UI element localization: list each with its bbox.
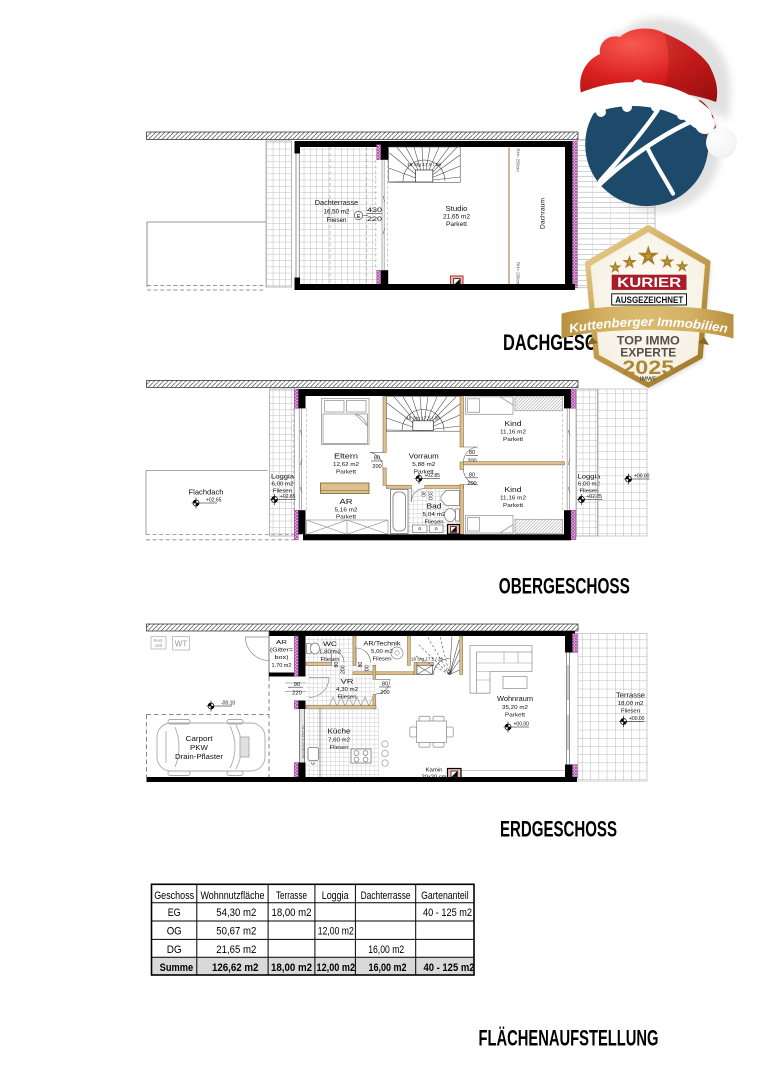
svg-text:Studio: Studio — [446, 204, 468, 213]
svg-text:18 Stg 17,5 / 28: 18 Stg 17,5 / 28 — [411, 657, 444, 662]
svg-text:80: 80 — [358, 662, 364, 668]
svg-text:12,62 m2: 12,62 m2 — [333, 462, 359, 468]
svg-text:Geschoss: Geschoss — [154, 890, 194, 902]
svg-text:90: 90 — [294, 682, 300, 688]
svg-text:Bad: Bad — [427, 502, 442, 511]
svg-text:200: 200 — [372, 464, 381, 470]
svg-text:18 Stg 17,5 / 28: 18 Stg 17,5 / 28 — [407, 162, 442, 167]
svg-text:+02.85: +02.85 — [425, 473, 441, 479]
svg-text:Kamin: Kamin — [426, 768, 443, 774]
svg-text:Fenstertür 9,75/2,30: Fenstertür 9,75/2,30 — [302, 726, 306, 758]
svg-text:4,30 m2: 4,30 m2 — [336, 687, 358, 693]
svg-text:(Gitter=: (Gitter= — [270, 648, 294, 654]
svg-text:5,04 m2: 5,04 m2 — [423, 512, 446, 518]
svg-text:18,00 m2: 18,00 m2 — [272, 907, 312, 919]
svg-text:Carport: Carport — [186, 736, 213, 743]
svg-text:18,00 m2: 18,00 m2 — [271, 962, 312, 974]
svg-text:+02.65: +02.65 — [206, 497, 222, 503]
svg-text:Parkett: Parkett — [446, 222, 467, 228]
svg-text:35,20 m2: 35,20 m2 — [502, 705, 528, 711]
svg-text:+00.00: +00.00 — [634, 473, 650, 479]
svg-text:PKW: PKW — [190, 745, 208, 752]
svg-text:5,00 m2: 5,00 m2 — [371, 649, 393, 655]
svg-text:Parkett: Parkett — [336, 469, 356, 475]
svg-text:+00.00: +00.00 — [514, 721, 530, 727]
svg-text:21,65 m2: 21,65 m2 — [443, 215, 471, 221]
svg-text:box): box) — [275, 655, 289, 661]
svg-text:Terrasse: Terrasse — [276, 890, 307, 902]
svg-text:Dachterrasse: Dachterrasse — [361, 890, 411, 902]
svg-text:11,16 m2: 11,16 m2 — [500, 496, 526, 502]
svg-text:Eltern: Eltern — [334, 452, 358, 461]
svg-text:IMWF: IMWF — [640, 376, 657, 382]
svg-text:Loggia: Loggia — [271, 474, 294, 481]
svg-text:200: 200 — [341, 665, 347, 674]
svg-text:Wohnnutzfläche: Wohnnutzfläche — [201, 890, 265, 902]
svg-text:80: 80 — [382, 682, 388, 688]
svg-text:Fliesen: Fliesen — [338, 695, 357, 701]
svg-text:21,65 m2: 21,65 m2 — [216, 944, 256, 956]
svg-text:430: 430 — [367, 207, 383, 214]
svg-text:TOP IMMO: TOP IMMO — [617, 336, 680, 348]
svg-text:220: 220 — [367, 216, 383, 223]
svg-text:5,88 m2: 5,88 m2 — [412, 462, 435, 468]
svg-text:AUSGEZEICHNET: AUSGEZEICHNET — [615, 295, 683, 305]
svg-text:AR: AR — [276, 640, 287, 646]
svg-text:40 - 125 m2: 40 - 125 m2 — [423, 907, 472, 919]
svg-text:Wohnraum: Wohnraum — [497, 694, 533, 703]
svg-text:12,00 m2: 12,00 m2 — [318, 926, 354, 938]
svg-text:Fliesen: Fliesen — [373, 657, 392, 663]
svg-text:50,67 m2: 50,67 m2 — [216, 926, 256, 938]
svg-text:16,00 m2: 16,00 m2 — [368, 944, 404, 956]
svg-text:6,00 m2: 6,00 m2 — [578, 482, 600, 488]
svg-text:WC: WC — [323, 641, 337, 648]
svg-text:OBERGESCHOSS: OBERGESCHOSS — [499, 574, 630, 599]
svg-text:OG: OG — [167, 926, 182, 938]
svg-text:200: 200 — [380, 690, 389, 696]
svg-text:126,62 m2: 126,62 m2 — [212, 962, 259, 974]
svg-text:Terrasse: Terrasse — [616, 693, 645, 700]
svg-text:Gartenanteil: Gartenanteil — [421, 890, 469, 902]
svg-text:Vorraum: Vorraum — [409, 452, 439, 461]
svg-text:54,30 m2: 54,30 m2 — [216, 907, 256, 919]
svg-text:5,16 m2: 5,16 m2 — [335, 507, 358, 513]
svg-text:Dachterrasse: Dachterrasse — [315, 198, 359, 207]
svg-text:EG: EG — [168, 907, 181, 919]
svg-text:200: 200 — [467, 481, 476, 487]
svg-text:Parkett: Parkett — [503, 503, 523, 509]
svg-text:Fliesen: Fliesen — [330, 745, 349, 751]
svg-text:+00.00: +00.00 — [629, 716, 645, 722]
svg-text:KURIER: KURIER — [617, 275, 681, 290]
svg-text:80: 80 — [374, 456, 380, 462]
svg-text:Loggia: Loggia — [322, 890, 350, 902]
svg-text:Fliesen: Fliesen — [425, 519, 444, 525]
svg-text:16,50 m2: 16,50 m2 — [324, 210, 351, 216]
svg-text:40 - 125 m2: 40 - 125 m2 — [424, 962, 475, 974]
svg-text:18 Stg 17,5 / 28: 18 Stg 17,5 / 28 — [406, 416, 441, 421]
svg-text:ERDGESCHOSS: ERDGESCHOSS — [500, 817, 617, 842]
svg-text:1,70 m2: 1,70 m2 — [272, 663, 292, 669]
svg-text:1,80 m2: 1,80 m2 — [319, 650, 341, 656]
svg-text:Fliesen: Fliesen — [621, 709, 640, 715]
svg-text:80: 80 — [469, 472, 475, 478]
svg-text:Küche: Küche — [328, 729, 351, 736]
svg-text:RH= 250cm: RH= 250cm — [516, 149, 521, 173]
svg-text:Parkett: Parkett — [503, 437, 523, 443]
svg-text:80: 80 — [469, 450, 475, 456]
svg-text:Kind: Kind — [505, 419, 522, 428]
svg-text:DG: DG — [167, 944, 182, 956]
svg-text:E: E — [357, 214, 361, 220]
svg-text:RH= 250cm: RH= 250cm — [516, 262, 521, 286]
svg-text:VR: VR — [341, 679, 355, 686]
svg-text:AR: AR — [340, 497, 353, 506]
svg-text:6,00 m2: 6,00 m2 — [272, 482, 294, 488]
svg-text:-00.10: -00.10 — [221, 700, 235, 706]
svg-text:+02.85: +02.85 — [280, 494, 296, 500]
svg-text:11,16 m2: 11,16 m2 — [500, 430, 526, 436]
svg-text:AR/Technik: AR/Technik — [364, 641, 402, 648]
svg-text:80: 80 — [334, 662, 340, 668]
svg-text:16,00 m2: 16,00 m2 — [369, 962, 407, 974]
svg-text:Summe: Summe — [160, 962, 194, 974]
svg-text:Dachraum: Dachraum — [541, 198, 547, 229]
svg-text:220: 220 — [292, 691, 302, 697]
svg-text:12,00 m2: 12,00 m2 — [317, 962, 356, 974]
svg-text:Drain-Pflaster: Drain-Pflaster — [175, 754, 224, 761]
svg-text:Parkett: Parkett — [505, 713, 525, 719]
svg-text:Kind: Kind — [505, 485, 522, 494]
svg-text:WT: WT — [175, 640, 188, 649]
svg-text:müll: müll — [155, 643, 163, 648]
svg-text:Fliesen: Fliesen — [327, 218, 347, 224]
svg-text:18,00 m2: 18,00 m2 — [618, 701, 644, 707]
svg-text:Flachdach: Flachdach — [189, 488, 224, 497]
svg-text:FLÄCHENAUFSTELLUNG: FLÄCHENAUFSTELLUNG — [479, 1026, 659, 1051]
svg-text:7,60 m2: 7,60 m2 — [328, 738, 350, 744]
